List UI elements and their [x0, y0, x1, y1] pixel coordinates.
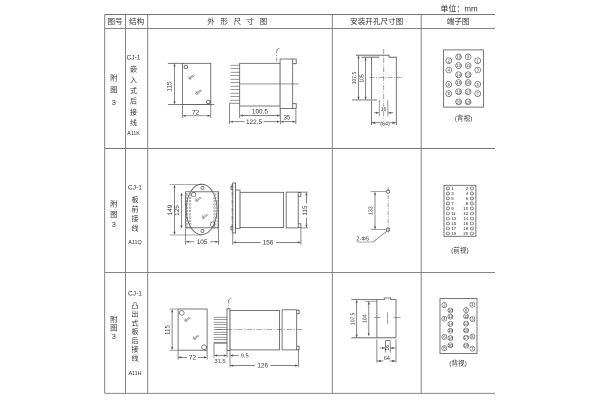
- svg-text:107.5: 107.5: [352, 72, 358, 85]
- svg-text:(背视): (背视): [449, 358, 467, 367]
- svg-text:(前视): (前视): [451, 245, 469, 254]
- svg-text:板: 板: [132, 195, 139, 204]
- svg-text:A11K: A11K: [127, 131, 140, 137]
- svg-text:11: 11: [464, 314, 469, 319]
- svg-text:16: 16: [456, 80, 461, 85]
- svg-text:156: 156: [263, 240, 274, 247]
- svg-text:13: 13: [466, 72, 471, 77]
- svg-text:14: 14: [448, 321, 453, 326]
- svg-text:133: 133: [369, 206, 375, 215]
- svg-text:附: 附: [110, 74, 118, 83]
- svg-text:3: 3: [112, 220, 116, 229]
- svg-text:接: 接: [132, 345, 139, 354]
- svg-text:嵌: 嵌: [130, 66, 137, 74]
- svg-text:2-Φ5: 2-Φ5: [356, 236, 369, 242]
- svg-text:16: 16: [385, 345, 391, 351]
- svg-text:接: 接: [132, 214, 139, 223]
- svg-text:107.5: 107.5: [350, 312, 356, 325]
- svg-text:A11Q: A11Q: [128, 240, 141, 246]
- svg-text:100.5: 100.5: [252, 108, 268, 115]
- svg-text:12: 12: [448, 314, 453, 319]
- svg-text:3: 3: [112, 332, 116, 341]
- svg-text:19: 19: [466, 99, 471, 104]
- svg-text:16: 16: [381, 107, 387, 113]
- svg-text:安装开孔尺寸图: 安装开孔尺寸图: [350, 16, 403, 26]
- svg-text:(64): (64): [380, 121, 390, 127]
- svg-text:115: 115: [165, 325, 172, 335]
- svg-text:35: 35: [284, 115, 291, 121]
- svg-text:18: 18: [448, 336, 453, 341]
- svg-text:20: 20: [448, 343, 453, 348]
- svg-text:72: 72: [189, 354, 197, 361]
- svg-text:20: 20: [456, 99, 461, 104]
- svg-text:31.5: 31.5: [214, 359, 225, 365]
- svg-text:20: 20: [463, 231, 468, 236]
- svg-text:115: 115: [302, 205, 309, 215]
- svg-text:接: 接: [130, 107, 137, 116]
- svg-text:105: 105: [359, 74, 365, 83]
- svg-text:18: 18: [456, 89, 461, 94]
- svg-text:19: 19: [451, 231, 456, 236]
- svg-text:17: 17: [464, 335, 469, 340]
- svg-text:线: 线: [132, 353, 139, 362]
- svg-text:17: 17: [466, 89, 471, 94]
- svg-text:3: 3: [112, 98, 116, 107]
- svg-text:附: 附: [110, 200, 118, 209]
- svg-text:9.5: 9.5: [241, 354, 249, 360]
- svg-text:64: 64: [384, 356, 390, 362]
- svg-text:126: 126: [257, 363, 268, 370]
- svg-text:122.5: 122.5: [246, 119, 262, 126]
- svg-text:125: 125: [174, 205, 181, 216]
- svg-text:14: 14: [456, 72, 461, 77]
- svg-text:115: 115: [167, 81, 174, 92]
- svg-text:前: 前: [132, 205, 139, 214]
- svg-text:CJ-1: CJ-1: [128, 291, 142, 298]
- svg-text:CJ-1: CJ-1: [128, 185, 142, 192]
- svg-text:12: 12: [456, 63, 461, 68]
- svg-text:外形尺寸图: 外形尺寸图: [207, 16, 272, 26]
- svg-text:图号: 图号: [108, 17, 124, 26]
- svg-text:结构: 结构: [129, 16, 145, 26]
- svg-text:式: 式: [132, 318, 139, 327]
- svg-text:11: 11: [466, 63, 471, 68]
- svg-text:线: 线: [132, 224, 139, 233]
- svg-text:入: 入: [130, 76, 137, 84]
- svg-text:板: 板: [132, 327, 139, 336]
- svg-text:出: 出: [132, 310, 139, 319]
- svg-text:10: 10: [448, 308, 453, 313]
- svg-text:15: 15: [466, 80, 471, 85]
- svg-text:CJ-1: CJ-1: [127, 55, 141, 62]
- svg-text:图: 图: [110, 324, 117, 333]
- svg-text:端子图: 端子图: [447, 16, 470, 26]
- svg-text:10: 10: [456, 55, 461, 60]
- svg-text:19: 19: [464, 343, 469, 348]
- svg-text:15: 15: [464, 328, 469, 333]
- svg-text:后: 后: [132, 336, 139, 345]
- svg-text:式: 式: [130, 86, 137, 95]
- svg-text:105: 105: [197, 239, 208, 246]
- svg-text:图: 图: [110, 210, 117, 219]
- svg-text:单位：mm: 单位：mm: [440, 4, 478, 14]
- svg-text:凸: 凸: [132, 302, 139, 310]
- svg-text:149: 149: [167, 204, 174, 215]
- svg-text:A11H: A11H: [128, 371, 141, 377]
- svg-text:图: 图: [110, 86, 117, 95]
- svg-text:16: 16: [448, 328, 453, 333]
- svg-text:线: 线: [130, 118, 137, 127]
- svg-text:后: 后: [130, 97, 137, 106]
- svg-text:104: 104: [362, 314, 368, 323]
- svg-text:72: 72: [192, 110, 200, 117]
- svg-text:(背视): (背视): [455, 114, 473, 123]
- svg-text:13: 13: [464, 321, 469, 326]
